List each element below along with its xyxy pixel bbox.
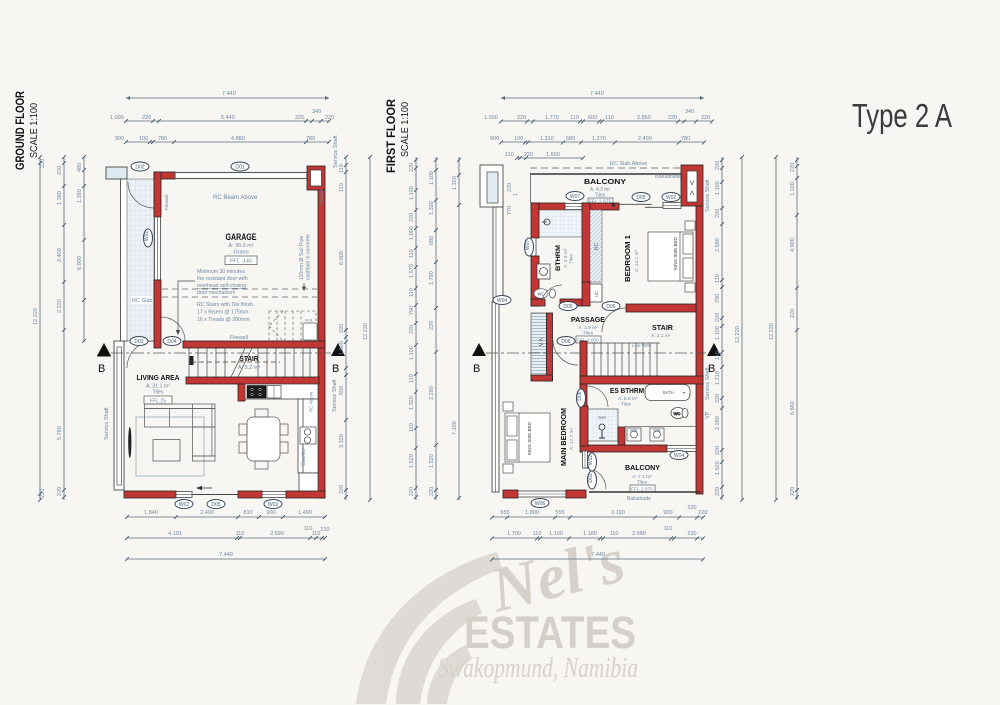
svg-text:Tiles: Tiles <box>621 402 632 408</box>
svg-text:B: B <box>332 363 339 375</box>
svg-text:2.580: 2.580 <box>632 531 646 537</box>
svg-text:A: 36.0 m²: A: 36.0 m² <box>228 243 254 249</box>
svg-text:790: 790 <box>715 294 721 303</box>
svg-text:A: 5.2 m²: A: 5.2 m² <box>238 365 260 371</box>
svg-text:FFL 25: FFL 25 <box>150 399 166 405</box>
svg-text:220: 220 <box>409 487 415 496</box>
svg-text:B: B <box>473 363 480 375</box>
svg-text:V: V <box>690 180 695 187</box>
svg-text:900: 900 <box>490 136 499 142</box>
svg-text:555: 555 <box>555 510 564 516</box>
svg-text:A: 17.7 m²: A: 17.7 m² <box>569 427 575 450</box>
svg-text:RC: RC <box>594 242 600 250</box>
svg-text:Firewall: Firewall <box>230 335 248 341</box>
svg-text:1.660: 1.660 <box>546 152 560 158</box>
svg-text:Grano: Grano <box>233 250 248 256</box>
svg-text:6.000: 6.000 <box>77 256 83 270</box>
svg-text:A: 3.9 m²: A: 3.9 m² <box>578 325 598 331</box>
svg-text:12.220: 12.220 <box>33 308 39 325</box>
svg-text:HWB: HWB <box>630 429 637 433</box>
svg-text:110: 110 <box>570 115 579 121</box>
svg-text:1.790: 1.790 <box>429 271 435 285</box>
svg-text:BTHRM: BTHRM <box>555 245 562 271</box>
svg-text:110mm Ø Soil Pipe: 110mm Ø Soil Pipe <box>299 236 305 280</box>
svg-text:2.680: 2.680 <box>715 238 721 252</box>
svg-text:2.400: 2.400 <box>200 510 214 516</box>
svg-text:220: 220 <box>57 166 63 175</box>
svg-text:2.280: 2.280 <box>715 416 721 430</box>
svg-text:1.100: 1.100 <box>549 531 563 537</box>
svg-text:220: 220 <box>687 505 696 511</box>
svg-text:KING SIZE BED: KING SIZE BED <box>673 236 678 270</box>
svg-text:220: 220 <box>409 163 415 172</box>
svg-text:220: 220 <box>429 321 435 330</box>
svg-text:D06: D06 <box>577 391 583 400</box>
svg-text:110: 110 <box>409 423 415 432</box>
svg-text:220: 220 <box>142 115 151 121</box>
svg-text:680: 680 <box>566 136 575 142</box>
svg-text:Counter: Counter <box>301 448 307 466</box>
svg-text:LIVING AREA: LIVING AREA <box>137 373 181 382</box>
svg-text:W04: W04 <box>674 453 685 459</box>
svg-text:110: 110 <box>236 531 245 537</box>
svg-text:1.000: 1.000 <box>484 115 498 121</box>
svg-text:220: 220 <box>668 115 677 121</box>
svg-text:SCALE 1:100: SCALE 1:100 <box>400 102 411 157</box>
svg-text:A: 8.8 m²: A: 8.8 m² <box>618 396 638 402</box>
svg-text:2.280: 2.280 <box>429 386 435 400</box>
svg-text:1.100: 1.100 <box>715 326 721 340</box>
svg-text:220: 220 <box>715 209 721 218</box>
svg-text:110: 110 <box>610 531 619 537</box>
svg-text:12.220: 12.220 <box>363 323 369 340</box>
svg-text:1.570: 1.570 <box>409 264 415 278</box>
svg-text:VP: VP <box>705 411 711 419</box>
svg-text:SHR: SHR <box>598 416 606 420</box>
svg-text:D05: D05 <box>636 195 645 201</box>
svg-text:ESTATES: ESTATES <box>464 607 636 658</box>
svg-text:220: 220 <box>517 115 526 121</box>
svg-text:A: 2.1 m²: A: 2.1 m² <box>651 333 671 339</box>
svg-text:900: 900 <box>266 510 275 516</box>
svg-text:770: 770 <box>507 206 513 215</box>
svg-text:780: 780 <box>158 136 167 142</box>
svg-text:W07: W07 <box>570 194 581 200</box>
svg-text:FFL -145: FFL -145 <box>230 259 252 265</box>
svg-text:220: 220 <box>701 115 710 121</box>
svg-text:WC: WC <box>674 411 681 416</box>
svg-text:110: 110 <box>533 531 542 537</box>
svg-text:Firewall: Firewall <box>164 194 169 210</box>
svg-text:BALCONY: BALCONY <box>625 463 660 472</box>
svg-text:BATH: BATH <box>663 390 674 395</box>
svg-text:W02: W02 <box>666 195 677 201</box>
svg-text:Service Shaft: Service Shaft <box>104 407 110 440</box>
svg-text:Line W08: Line W08 <box>632 343 652 348</box>
svg-text:220: 220 <box>339 485 345 494</box>
svg-text:Swakopmund, Namibia: Swakopmund, Namibia <box>438 653 638 684</box>
svg-text:Balustrade: Balustrade <box>655 174 681 180</box>
svg-text:100: 100 <box>514 136 523 142</box>
svg-text:A: 14.1 m²: A: 14.1 m² <box>634 249 640 272</box>
svg-text:110: 110 <box>605 115 614 121</box>
svg-text:RC Beam Above: RC Beam Above <box>213 195 258 201</box>
svg-text:Service Shaft: Service Shaft <box>705 179 711 212</box>
svg-text:340: 340 <box>685 109 694 115</box>
svg-text:1.490: 1.490 <box>298 510 312 516</box>
svg-text:1.100: 1.100 <box>409 346 415 360</box>
svg-text:900: 900 <box>115 136 124 142</box>
svg-text:STAIR: STAIR <box>240 354 259 363</box>
svg-text:7.440: 7.440 <box>591 552 605 558</box>
svg-text:680: 680 <box>429 236 435 245</box>
svg-text:220: 220 <box>40 159 46 168</box>
svg-text:overhead self-closing: overhead self-closing <box>197 283 246 289</box>
svg-text:FIRST FLOOR: FIRST FLOOR <box>386 98 398 173</box>
svg-text:780: 780 <box>681 136 690 142</box>
svg-text:220: 220 <box>409 325 415 334</box>
svg-text:RC Stairs with Tile finish.: RC Stairs with Tile finish. <box>197 302 254 308</box>
svg-text:D01: D01 <box>235 165 244 171</box>
svg-text:12.220: 12.220 <box>735 326 741 343</box>
svg-text:1.770: 1.770 <box>545 115 559 121</box>
svg-text:480: 480 <box>77 163 83 172</box>
svg-text:16 x Treads @ 280mm: 16 x Treads @ 280mm <box>197 317 250 323</box>
svg-text:1.520: 1.520 <box>409 454 415 468</box>
svg-text:1.380: 1.380 <box>57 191 63 205</box>
svg-text:W06: W06 <box>535 501 546 507</box>
svg-text:220: 220 <box>715 313 721 322</box>
svg-text:4.900: 4.900 <box>790 238 796 252</box>
svg-text:Λ: Λ <box>690 190 695 197</box>
svg-text:D06: D06 <box>606 304 615 310</box>
svg-text:1.100: 1.100 <box>790 182 796 196</box>
svg-text:HWB: HWB <box>653 429 660 433</box>
svg-text:340: 340 <box>312 109 321 115</box>
svg-text:PASSAGE: PASSAGE <box>571 315 605 324</box>
svg-text:door mechanism: door mechanism <box>197 290 235 296</box>
svg-text:900: 900 <box>663 510 672 516</box>
svg-text:Firewall: Firewall <box>319 189 324 205</box>
svg-text:Minimum 30 minutes: Minimum 30 minutes <box>197 269 245 275</box>
svg-text:V Λ: V Λ <box>539 337 545 346</box>
svg-text:RC Above: RC Above <box>309 391 314 412</box>
svg-text:600: 600 <box>588 115 597 121</box>
svg-text:W07: W07 <box>525 240 531 251</box>
svg-text:RC Slab: RC Slab <box>132 298 152 304</box>
svg-text:GARAGE: GARAGE <box>226 232 257 242</box>
svg-text:D05: D05 <box>211 502 220 508</box>
svg-text:cast/laid in concrete: cast/laid in concrete <box>306 234 312 280</box>
svg-text:100: 100 <box>139 136 148 142</box>
svg-text:1.100: 1.100 <box>429 171 435 185</box>
svg-text:1.270: 1.270 <box>592 136 606 142</box>
svg-text:1.320: 1.320 <box>452 176 458 190</box>
svg-text:110: 110 <box>409 249 415 258</box>
svg-text:Service Shaft: Service Shaft <box>705 367 711 400</box>
svg-text:2.699: 2.699 <box>270 531 284 537</box>
svg-text:1.180: 1.180 <box>583 531 597 537</box>
svg-text:790: 790 <box>409 306 415 315</box>
svg-text:6.660: 6.660 <box>790 401 796 415</box>
svg-text:110: 110 <box>505 152 514 158</box>
svg-text:UC: UC <box>594 291 599 297</box>
svg-text:110: 110 <box>312 531 321 537</box>
svg-text:MAIN BEDROOM: MAIN BEDROOM <box>559 408 568 466</box>
svg-text:2.850: 2.850 <box>637 115 651 121</box>
svg-text:650: 650 <box>339 386 345 395</box>
svg-text:Tiles: Tiles <box>153 390 164 396</box>
svg-text:SCALE 1:100: SCALE 1:100 <box>29 103 40 158</box>
svg-text:1.330: 1.330 <box>429 201 435 215</box>
svg-text:W.M.: W.M. <box>305 319 313 323</box>
svg-text:1.100: 1.100 <box>409 186 415 200</box>
svg-text:110: 110 <box>339 164 345 173</box>
svg-text:220: 220 <box>320 527 329 533</box>
svg-text:220: 220 <box>698 510 707 516</box>
svg-text:W03: W03 <box>268 502 279 508</box>
svg-text:3.190: 3.190 <box>611 510 625 516</box>
svg-text:2.220: 2.220 <box>57 299 63 313</box>
svg-text:Type 2 A: Type 2 A <box>852 97 952 134</box>
svg-text:555: 555 <box>500 510 509 516</box>
svg-text:fire resistant door with: fire resistant door with <box>197 276 248 282</box>
svg-text:220: 220 <box>715 446 721 455</box>
svg-text:ES BTHRM: ES BTHRM <box>610 386 644 395</box>
svg-text:220: 220 <box>507 183 513 192</box>
svg-text:1.380: 1.380 <box>77 189 83 203</box>
svg-text:1.700: 1.700 <box>507 531 521 537</box>
svg-text:225: 225 <box>295 115 304 121</box>
svg-text:5.780: 5.780 <box>57 426 63 440</box>
svg-text:220: 220 <box>687 531 696 537</box>
svg-text:110: 110 <box>664 526 673 532</box>
svg-text:W02: W02 <box>588 455 594 466</box>
svg-text:810: 810 <box>243 510 252 516</box>
svg-text:17 x Risers @ 175mm: 17 x Risers @ 175mm <box>197 310 248 316</box>
svg-text:220: 220 <box>715 161 721 170</box>
svg-text:KING SIZE BED: KING SIZE BED <box>527 421 532 455</box>
svg-text:Service Shaft: Service Shaft <box>332 379 338 412</box>
svg-text:4.880: 4.880 <box>231 136 245 142</box>
svg-text:Tiles: Tiles <box>569 253 575 264</box>
svg-text:STAIR: STAIR <box>652 323 674 332</box>
svg-text:2.400: 2.400 <box>57 248 63 262</box>
svg-text:2.400: 2.400 <box>638 136 652 142</box>
svg-text:1.840: 1.840 <box>144 510 158 516</box>
svg-text:W02: W02 <box>179 502 190 508</box>
svg-text:7.440: 7.440 <box>219 552 233 558</box>
svg-text:110: 110 <box>715 351 721 360</box>
svg-text:12.220: 12.220 <box>769 323 775 340</box>
svg-text:1: 1 <box>513 193 519 196</box>
svg-text:A: 7.1 m²: A: 7.1 m² <box>632 474 652 480</box>
svg-text:1.520: 1.520 <box>429 454 435 468</box>
svg-text:D06: D06 <box>563 304 572 310</box>
svg-text:D06: D06 <box>561 339 570 345</box>
svg-text:Balustrade: Balustrade <box>627 496 651 502</box>
svg-text:7.440: 7.440 <box>590 91 604 97</box>
svg-text:5.440: 5.440 <box>221 115 235 121</box>
svg-text:220: 220 <box>524 152 533 158</box>
svg-text:1.800: 1.800 <box>525 510 539 516</box>
svg-text:1.000: 1.000 <box>110 115 124 121</box>
svg-text:Service Shaft: Service Shaft <box>333 135 339 168</box>
svg-text:3.320: 3.320 <box>339 434 345 448</box>
svg-text:Tiles: Tiles <box>595 193 606 199</box>
svg-text:7.440: 7.440 <box>222 91 236 97</box>
svg-text:1.320: 1.320 <box>409 396 415 410</box>
svg-text:BALCONY: BALCONY <box>584 177 626 186</box>
svg-text:110: 110 <box>339 183 345 192</box>
svg-text:A: 4.9 m²: A: 4.9 m² <box>563 248 569 268</box>
svg-text:D03: D03 <box>134 339 143 345</box>
svg-text:1.000: 1.000 <box>409 226 415 240</box>
svg-text:220: 220 <box>790 309 796 318</box>
svg-text:220: 220 <box>715 487 721 496</box>
svg-text:1.310: 1.310 <box>540 136 554 142</box>
svg-text:B: B <box>98 363 105 375</box>
svg-text:Tiles: Tiles <box>583 331 594 337</box>
svg-text:W01: W01 <box>144 231 150 242</box>
svg-text:RC Slab Above: RC Slab Above <box>610 161 647 167</box>
svg-text:220: 220 <box>715 394 721 403</box>
svg-text:W04: W04 <box>497 298 508 304</box>
svg-text:220: 220 <box>409 213 415 222</box>
svg-text:D03: D03 <box>588 473 594 482</box>
svg-text:GROUND FLOOR: GROUND FLOOR <box>15 90 27 170</box>
svg-text:BEDROOM 1: BEDROOM 1 <box>623 235 632 282</box>
svg-text:Tiles: Tiles <box>637 480 648 486</box>
svg-text:7.100: 7.100 <box>452 421 458 435</box>
svg-text:1.210: 1.210 <box>715 371 721 385</box>
svg-text:4.191: 4.191 <box>168 531 182 537</box>
svg-text:D02: D02 <box>135 165 144 171</box>
svg-text:6.000: 6.000 <box>339 251 345 265</box>
svg-text:D04: D04 <box>167 339 176 345</box>
